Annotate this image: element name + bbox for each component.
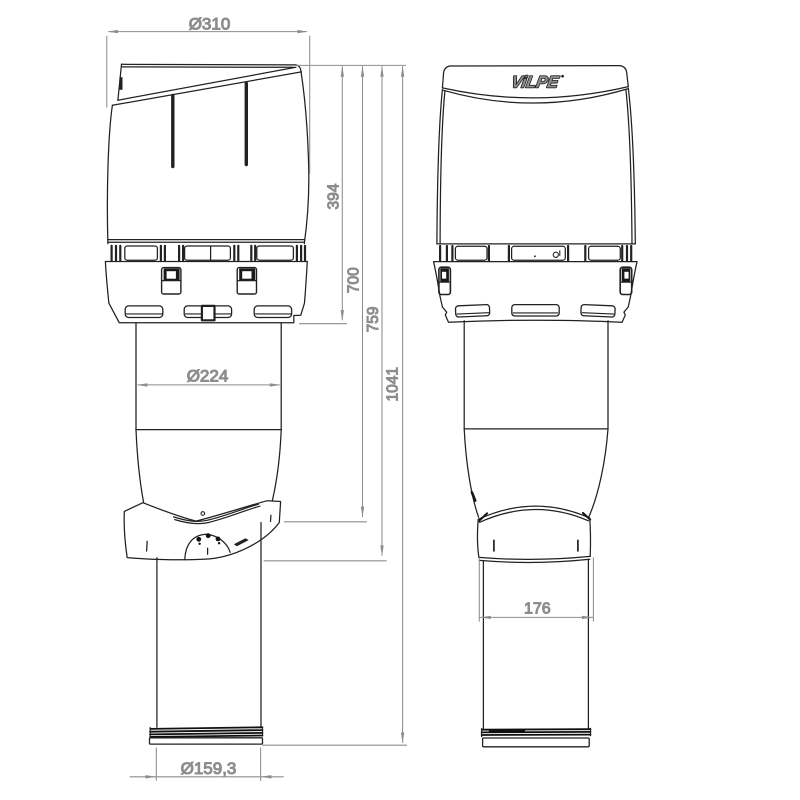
svg-text:Ø159,3: Ø159,3 <box>181 759 237 778</box>
svg-text:Ø224: Ø224 <box>187 367 229 386</box>
svg-text:700: 700 <box>345 267 362 293</box>
svg-text:1041: 1041 <box>385 367 402 401</box>
svg-text:394: 394 <box>326 183 343 209</box>
svg-text:Ø310: Ø310 <box>189 15 231 34</box>
svg-text:176: 176 <box>524 601 551 618</box>
svg-text:759: 759 <box>365 306 382 332</box>
svg-text:ViLPE: ViLPE <box>510 73 561 92</box>
